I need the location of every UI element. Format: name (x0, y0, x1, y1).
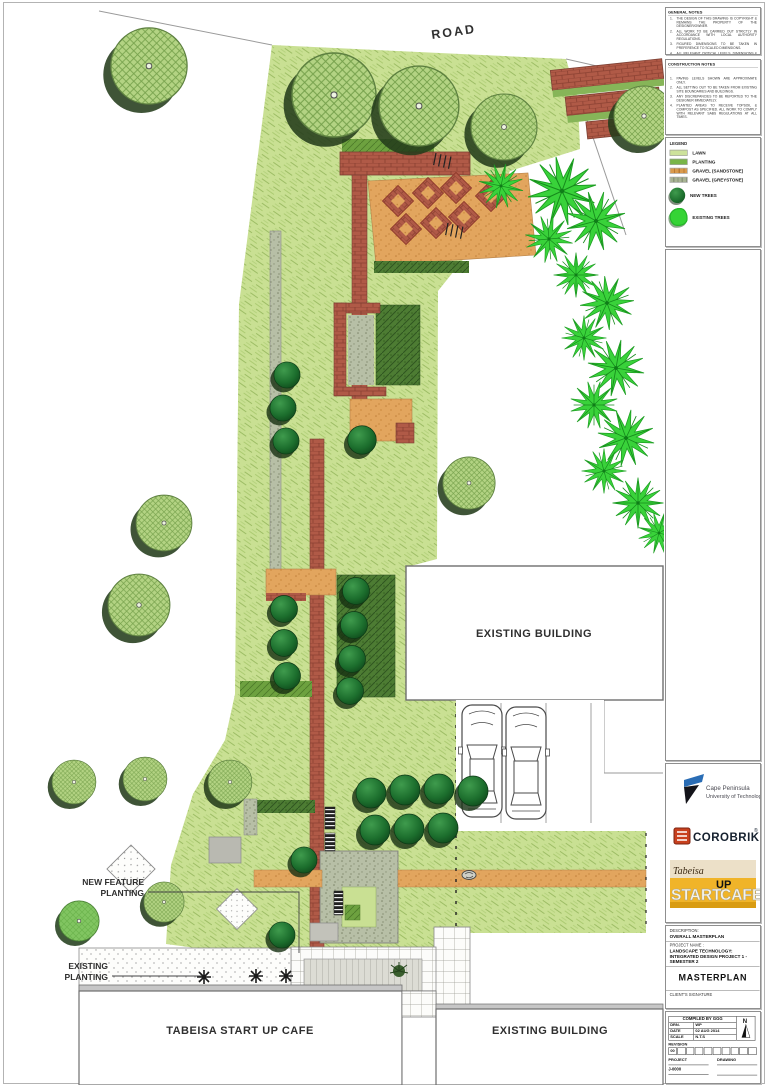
description-box: DESCRIPTION: OVERALL MASTERPLAN PROJECT … (665, 925, 761, 1009)
tabeisa-brand: Tabeisa (673, 866, 704, 877)
cput-logo: Cape Peninsula University of Technology (684, 774, 760, 804)
description-value: OVERALL MASTERPLAN (670, 934, 756, 939)
road-label: ROAD (430, 22, 476, 42)
legend-item-new-trees: NEW TREES (670, 188, 756, 204)
client-signature-label: CLIENT'S SIGNATURE (670, 993, 756, 997)
construction-note: 1.PAVING LEVELS SHOWN ARE APPROXIMATE ON… (670, 77, 757, 85)
construction-note: 2.ALL SETTING OUT TO BE TAKEN FROM EXIST… (670, 86, 757, 94)
cput-name-line2: University of Technology (706, 794, 760, 800)
existing-building-mid-label: EXISTING BUILDING (476, 628, 592, 640)
svg-text:N: N (743, 1019, 747, 1025)
tabeisa-start: START (671, 887, 722, 904)
existing-planting-label-1: EXISTING (68, 961, 108, 971)
project-name-value: LANDSCAPE TECHNOLOGY: INTEGRATED DESIGN … (670, 948, 756, 964)
logos-box: Cape Peninsula University of Technology … (665, 763, 761, 923)
legend-title: LEGEND (670, 142, 756, 146)
corobrik-reg-mark: ® (754, 827, 758, 834)
revision-cells: 00 (668, 1047, 757, 1055)
tabeisa-cafe: CAFE (720, 887, 760, 904)
construction-notes-box: CONSTRUCTION NOTES 1.PAVING LEVELS SHOWN… (665, 59, 761, 135)
new-tree-swatch (670, 188, 686, 204)
empty-panel (665, 249, 761, 761)
project-field: PROJECT (668, 1058, 708, 1065)
construction-note: 3.ANY DISCREPANCIES TO BE REPORTED TO TH… (670, 95, 757, 103)
tabeisa-logo: Tabeisa START UP CAFE (670, 860, 760, 908)
drawing-field: DRAWING (717, 1058, 757, 1065)
construction-note: 4.PLANTED AREAS TO RECEIVE TOPSOIL & COM… (670, 104, 757, 119)
scale-row: SCALEN.T.S (669, 1035, 736, 1040)
general-note: 1.THE DESIGN OF THIS DRAWING IS COPYRIGH… (670, 17, 757, 28)
legend-item-lawn: LAWN (670, 150, 756, 156)
drawing-number: J-0000 (668, 1068, 708, 1076)
tabeisa-cafe-label: TABEISA START UP CAFE (166, 1025, 314, 1037)
general-note: 3.FIGURED DIMENSIONS TO BE TAKEN IN PREF… (670, 43, 757, 51)
title-block: COMPILED BY GGG DRN.WP DATE02 AUG 2014 S… (665, 1011, 761, 1084)
general-note: 4.ALL RELEVANT CRITICAL LEVELS, DIMENSIO… (670, 52, 757, 55)
cput-name-line1: Cape Peninsula (706, 785, 750, 792)
planting-swatch (670, 159, 688, 165)
masterplan-drawing: ROAD EXISTING BUILDING TABEISA START UP … (4, 3, 664, 1085)
new-feature-planting-label-2: PLANTING (101, 888, 145, 898)
new-feature-tree (55, 901, 99, 946)
greystone-swatch (670, 177, 688, 183)
existing-tree-swatch (670, 208, 688, 226)
general-note: 2.ALL WORK TO BE CARRIED OUT STRICTLY IN… (670, 30, 757, 41)
rock-sketch (462, 871, 476, 880)
car-2 (503, 707, 550, 819)
drawing-sheet-right-column: GENERAL NOTES 1.THE DESIGN OF THIS DRAWI… (663, 3, 763, 1084)
legend-box: LEGEND LAWN PLANTING GRAVEL (SANDSTONE) … (665, 137, 761, 247)
legend-item-gravel-sandstone: GRAVEL (SANDSTONE) (670, 168, 756, 174)
north-arrow: N (737, 1016, 756, 1041)
legend-item-gravel-greystone: GRAVEL (GREYSTONE) (670, 177, 756, 183)
legend-item-existing-trees: EXISTING TREES (670, 208, 756, 226)
legend-item-planting: PLANTING (670, 159, 756, 165)
general-notes-title: GENERAL NOTES (668, 10, 758, 16)
corobrik-logo: COROBRIK ® (674, 827, 760, 844)
description-label: DESCRIPTION: (670, 929, 756, 933)
project-name-label: PROJECT NAME : (670, 943, 756, 947)
drawing-title: MASTERPLAN (666, 973, 760, 983)
general-notes-box: GENERAL NOTES 1.THE DESIGN OF THIS DRAWI… (665, 7, 761, 55)
existing-building-bottom-label: EXISTING BUILDING (492, 1025, 608, 1037)
lawn-swatch (670, 150, 688, 156)
revision-label: REVISION (668, 1042, 757, 1046)
sandstone-swatch (670, 168, 688, 174)
corobrik-name: COROBRIK (693, 832, 760, 844)
drawing-number-blank (717, 1068, 757, 1076)
construction-notes-title: CONSTRUCTION NOTES (668, 62, 758, 68)
existing-planting-label-2: PLANTING (65, 972, 109, 982)
new-feature-planting-label-1: NEW FEATURE (82, 877, 144, 887)
